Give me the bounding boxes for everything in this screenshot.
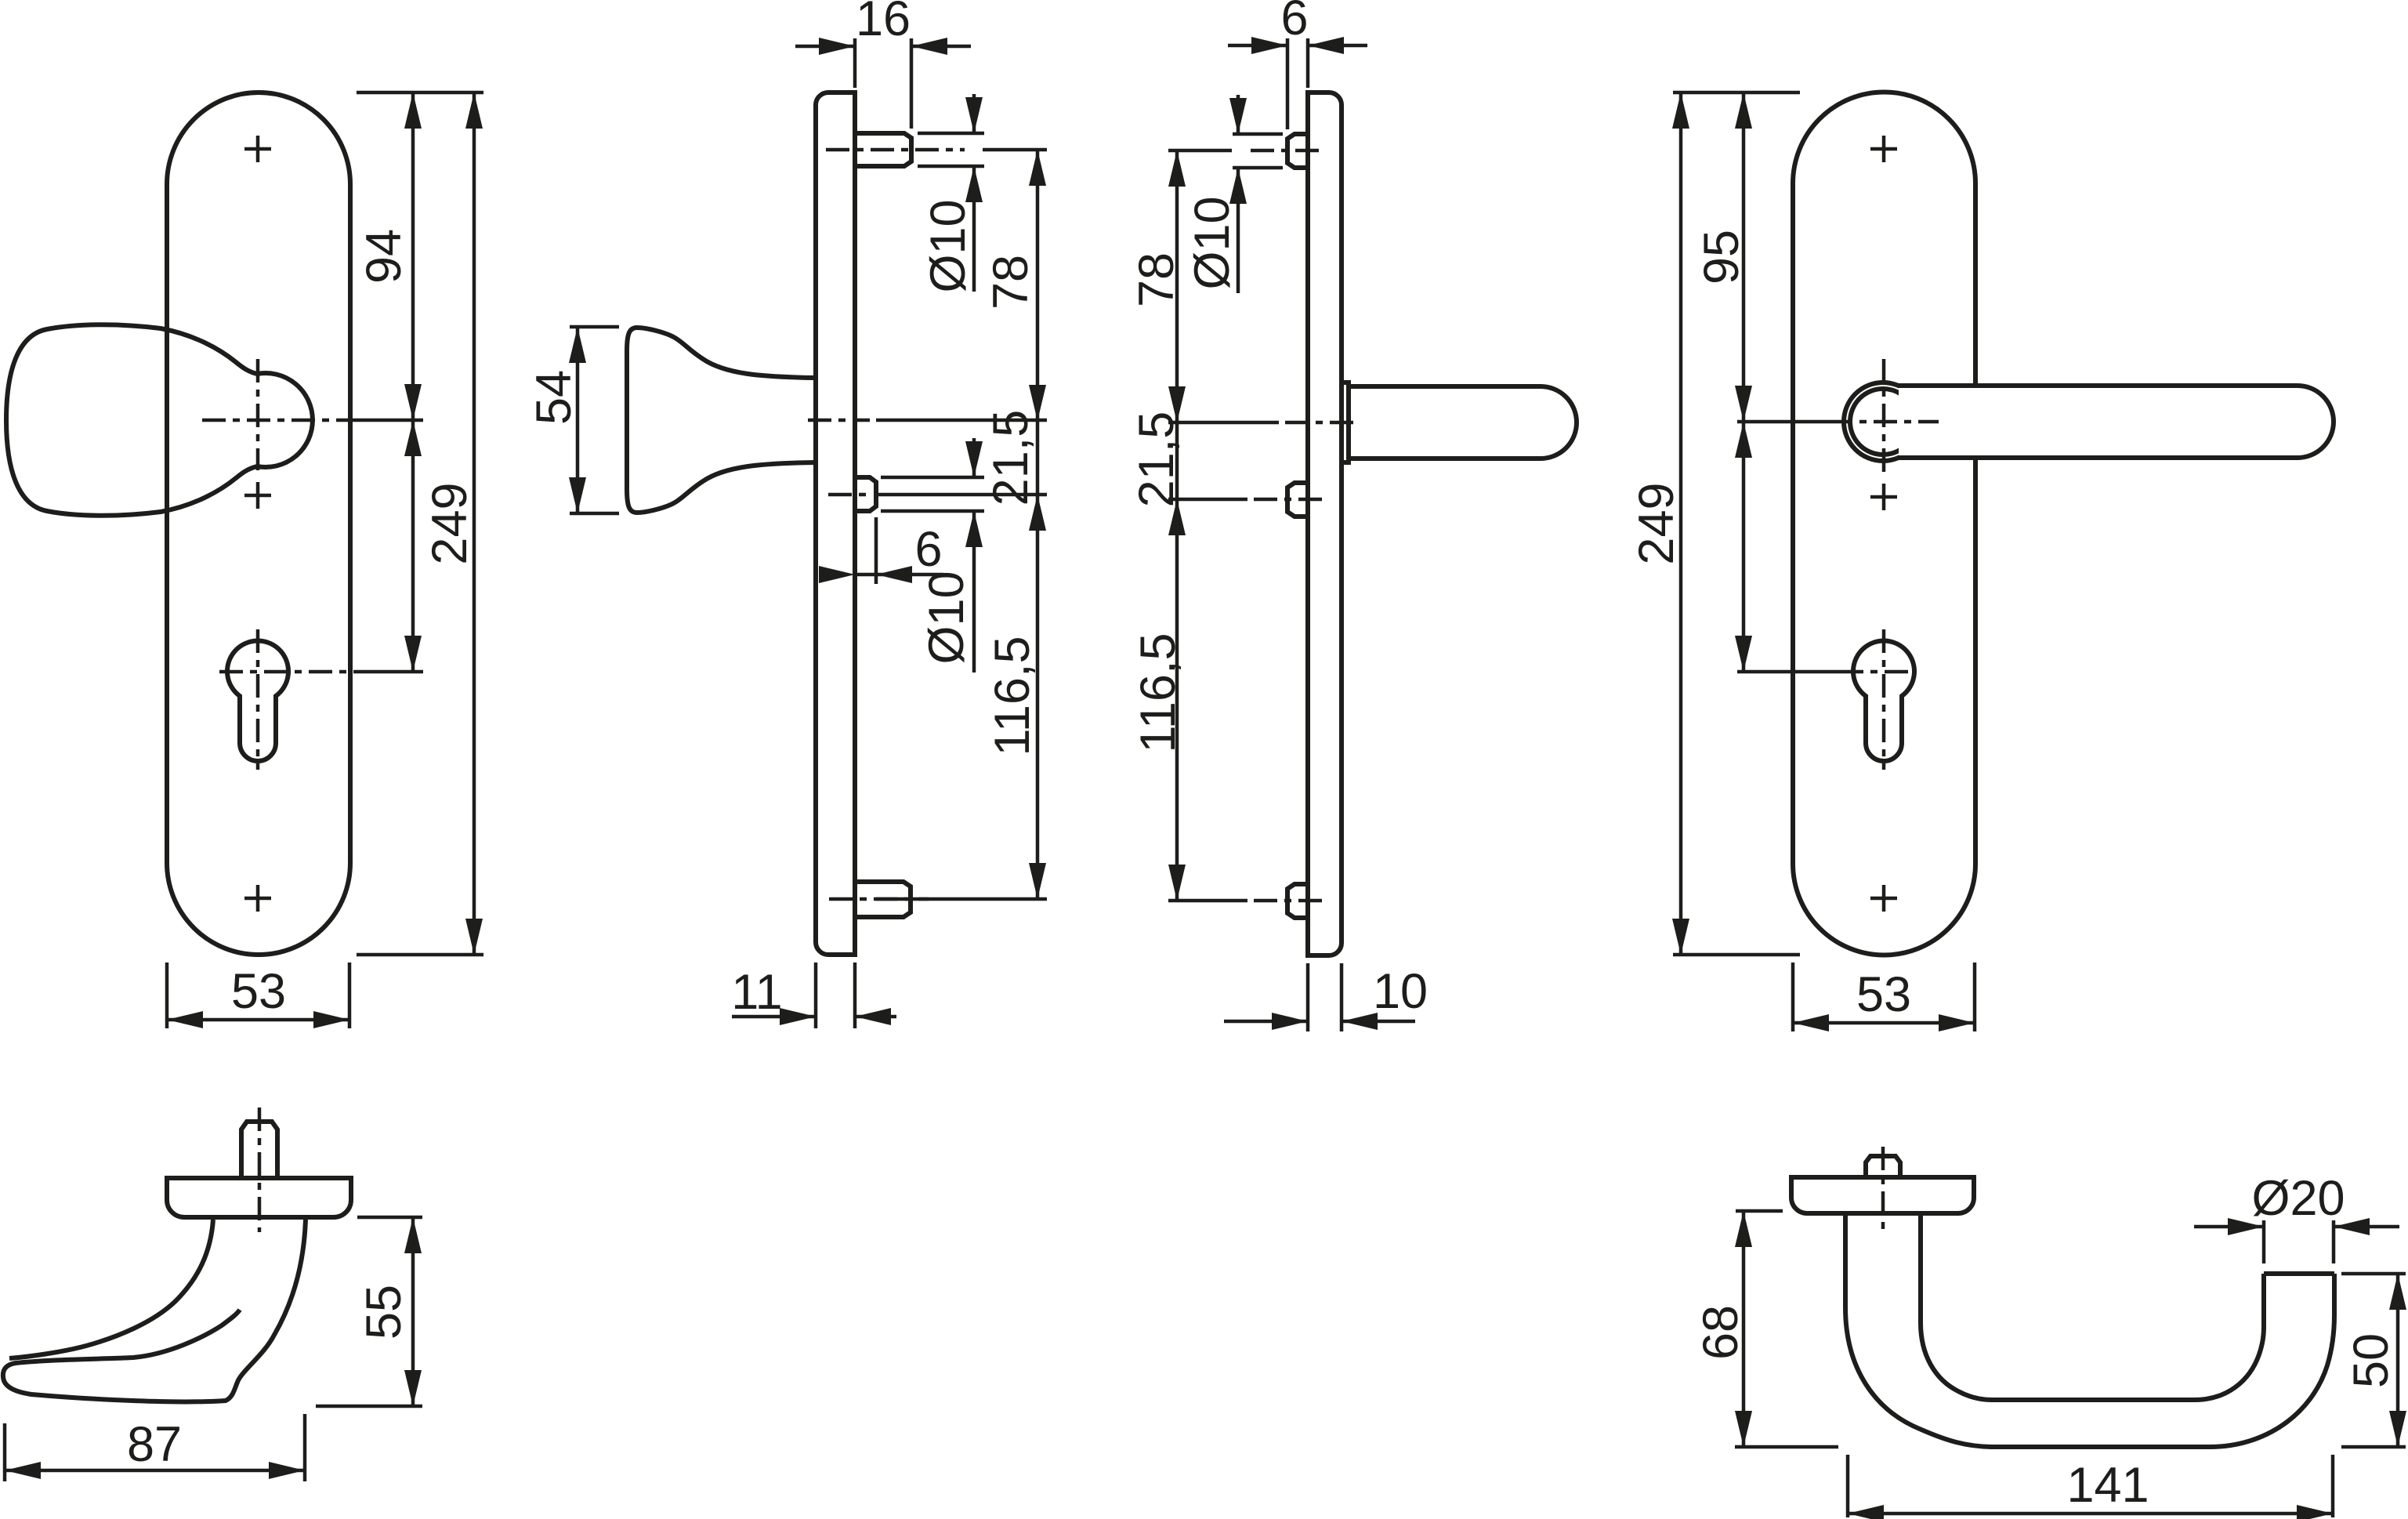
- svg-text:10: 10: [1373, 964, 1428, 1019]
- svg-text:6: 6: [914, 522, 942, 577]
- svg-text:21,5: 21,5: [983, 410, 1038, 506]
- svg-text:78: 78: [1129, 252, 1184, 307]
- svg-text:116,5: 116,5: [1131, 633, 1186, 753]
- svg-text:54: 54: [527, 370, 581, 425]
- svg-text:Ø10: Ø10: [921, 199, 976, 292]
- svg-text:78: 78: [983, 255, 1038, 310]
- svg-text:Ø20: Ø20: [2251, 1171, 2345, 1226]
- svg-text:94: 94: [357, 229, 411, 284]
- svg-text:6: 6: [1280, 0, 1308, 45]
- svg-text:68: 68: [1693, 1305, 1748, 1360]
- svg-text:249: 249: [422, 482, 477, 564]
- svg-text:87: 87: [127, 1417, 182, 1472]
- svg-text:141: 141: [2066, 1458, 2149, 1513]
- svg-text:Ø10: Ø10: [1185, 196, 1240, 289]
- svg-text:249: 249: [1629, 482, 1684, 564]
- svg-text:50: 50: [2344, 1333, 2399, 1388]
- svg-text:16: 16: [856, 0, 911, 46]
- svg-text:21,5: 21,5: [1129, 411, 1184, 508]
- svg-text:53: 53: [231, 964, 286, 1019]
- svg-text:Ø10: Ø10: [919, 571, 974, 664]
- svg-text:53: 53: [1856, 967, 1911, 1022]
- svg-text:55: 55: [357, 1285, 411, 1340]
- svg-text:95: 95: [1694, 230, 1749, 285]
- svg-text:11: 11: [731, 965, 782, 1020]
- svg-text:116,5: 116,5: [985, 636, 1040, 756]
